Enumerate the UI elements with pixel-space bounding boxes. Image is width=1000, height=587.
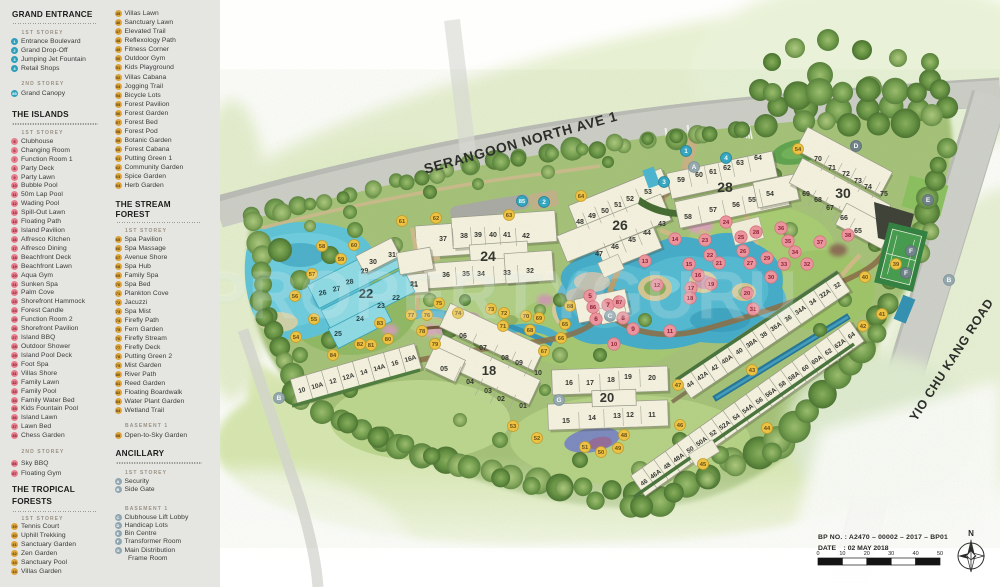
- svg-text:B: B: [277, 395, 282, 402]
- svg-text:0: 0: [816, 551, 819, 557]
- svg-text:30: 30: [888, 551, 894, 557]
- svg-text:40: 40: [913, 551, 919, 557]
- svg-text:BP NO. : A2470 – 00002 – 2017: BP NO. : A2470 – 00002 – 2017 – BP01: [818, 534, 948, 541]
- svg-text:50: 50: [937, 551, 943, 557]
- svg-text:DATE : 02 MAY 2018: DATE : 02 MAY 2018: [818, 545, 889, 552]
- svg-text:N: N: [968, 529, 974, 538]
- svg-text:20: 20: [864, 551, 870, 557]
- svg-text:B: B: [947, 277, 952, 284]
- svg-text:10: 10: [839, 551, 845, 557]
